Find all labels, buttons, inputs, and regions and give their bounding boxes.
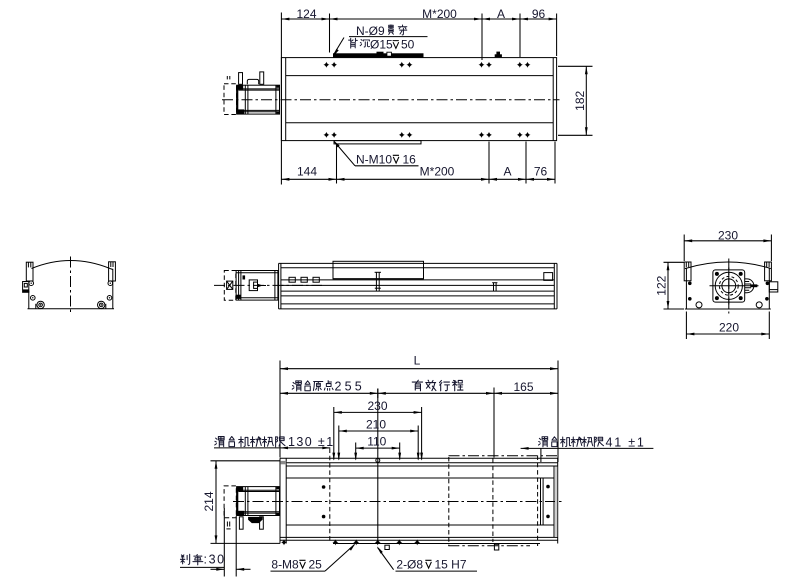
svg-text:16: 16 [403, 152, 417, 166]
svg-text:130 ±1: 130 ±1 [288, 435, 335, 449]
svg-text:230: 230 [367, 399, 387, 413]
svg-text:8-M8: 8-M8 [271, 557, 299, 571]
svg-text:255: 255 [335, 380, 365, 394]
svg-text:210: 210 [366, 418, 386, 432]
svg-text:122: 122 [655, 275, 669, 295]
svg-text:L: L [414, 354, 421, 368]
svg-text:A: A [503, 165, 511, 179]
svg-text:76: 76 [534, 165, 548, 179]
svg-text:A: A [497, 7, 505, 21]
svg-text:Ø15: Ø15 [370, 38, 393, 52]
svg-text:214: 214 [202, 491, 216, 511]
svg-text:N-Ø9: N-Ø9 [356, 24, 385, 38]
svg-text:144: 144 [297, 165, 317, 179]
svg-text:15 H7: 15 H7 [435, 557, 467, 571]
svg-text:110: 110 [367, 434, 386, 448]
svg-text:N-M10: N-M10 [356, 152, 392, 166]
svg-text:230: 230 [718, 229, 738, 243]
svg-text::30: :30 [204, 553, 226, 567]
svg-text:2-Ø8: 2-Ø8 [396, 557, 423, 571]
svg-text:220: 220 [719, 321, 739, 335]
svg-text:50: 50 [401, 38, 415, 52]
svg-text:M*200: M*200 [422, 7, 457, 21]
svg-text:M*200: M*200 [420, 165, 455, 179]
svg-text:165: 165 [513, 380, 533, 394]
svg-text:41 ±1: 41 ±1 [606, 435, 646, 449]
svg-text:96: 96 [532, 7, 546, 21]
svg-text:124: 124 [296, 7, 316, 21]
svg-text:182: 182 [573, 90, 587, 110]
svg-text:25: 25 [309, 557, 323, 571]
